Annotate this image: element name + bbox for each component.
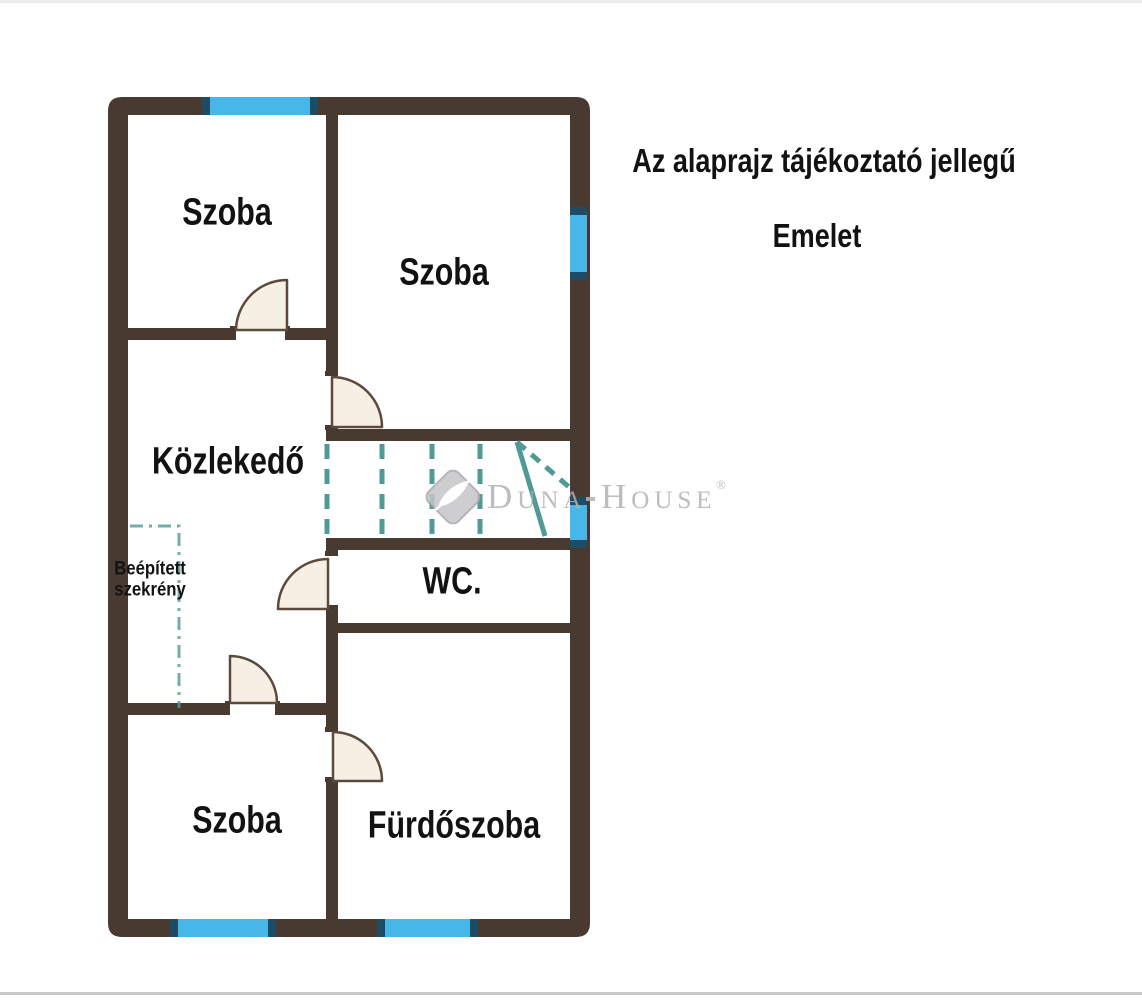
built-in-closet-outline	[130, 526, 179, 708]
window-top	[202, 97, 318, 115]
room-label-hallway: Közlekedő	[152, 441, 304, 484]
watermark-registered-mark: ®	[716, 477, 726, 492]
room-label-bathroom: Fürdőszoba	[368, 805, 540, 848]
room-label-wc: WC.	[422, 561, 481, 604]
window-bottom-right	[377, 919, 478, 937]
watermark-separator-dash	[586, 497, 595, 501]
door-wc	[278, 559, 328, 609]
window-right-upper	[570, 207, 587, 280]
watermark-brand-word1: Duna	[487, 477, 586, 516]
disclaimer-note: Az alaprajz tájékoztató jellegű	[632, 142, 1015, 180]
room-label-bottom-left: Szoba	[192, 800, 282, 843]
door-room-top-right	[332, 377, 382, 427]
watermark-brand-word2: House	[601, 477, 717, 516]
window-bottom-left	[170, 919, 276, 937]
room-label-top-left: Szoba	[182, 192, 272, 235]
door-bathroom	[333, 732, 382, 781]
interior-walls	[128, 115, 570, 919]
door-room-top-left	[236, 280, 287, 330]
floor-plan-page: Duna House ® Szoba Szoba Közlekedő WC. S…	[0, 0, 1142, 1000]
floor-name: Emelet	[773, 217, 862, 255]
room-label-top-right: Szoba	[399, 252, 489, 295]
door-room-bottom-left	[230, 656, 277, 703]
built-in-closet-label: Beépített szekrény	[106, 559, 194, 602]
